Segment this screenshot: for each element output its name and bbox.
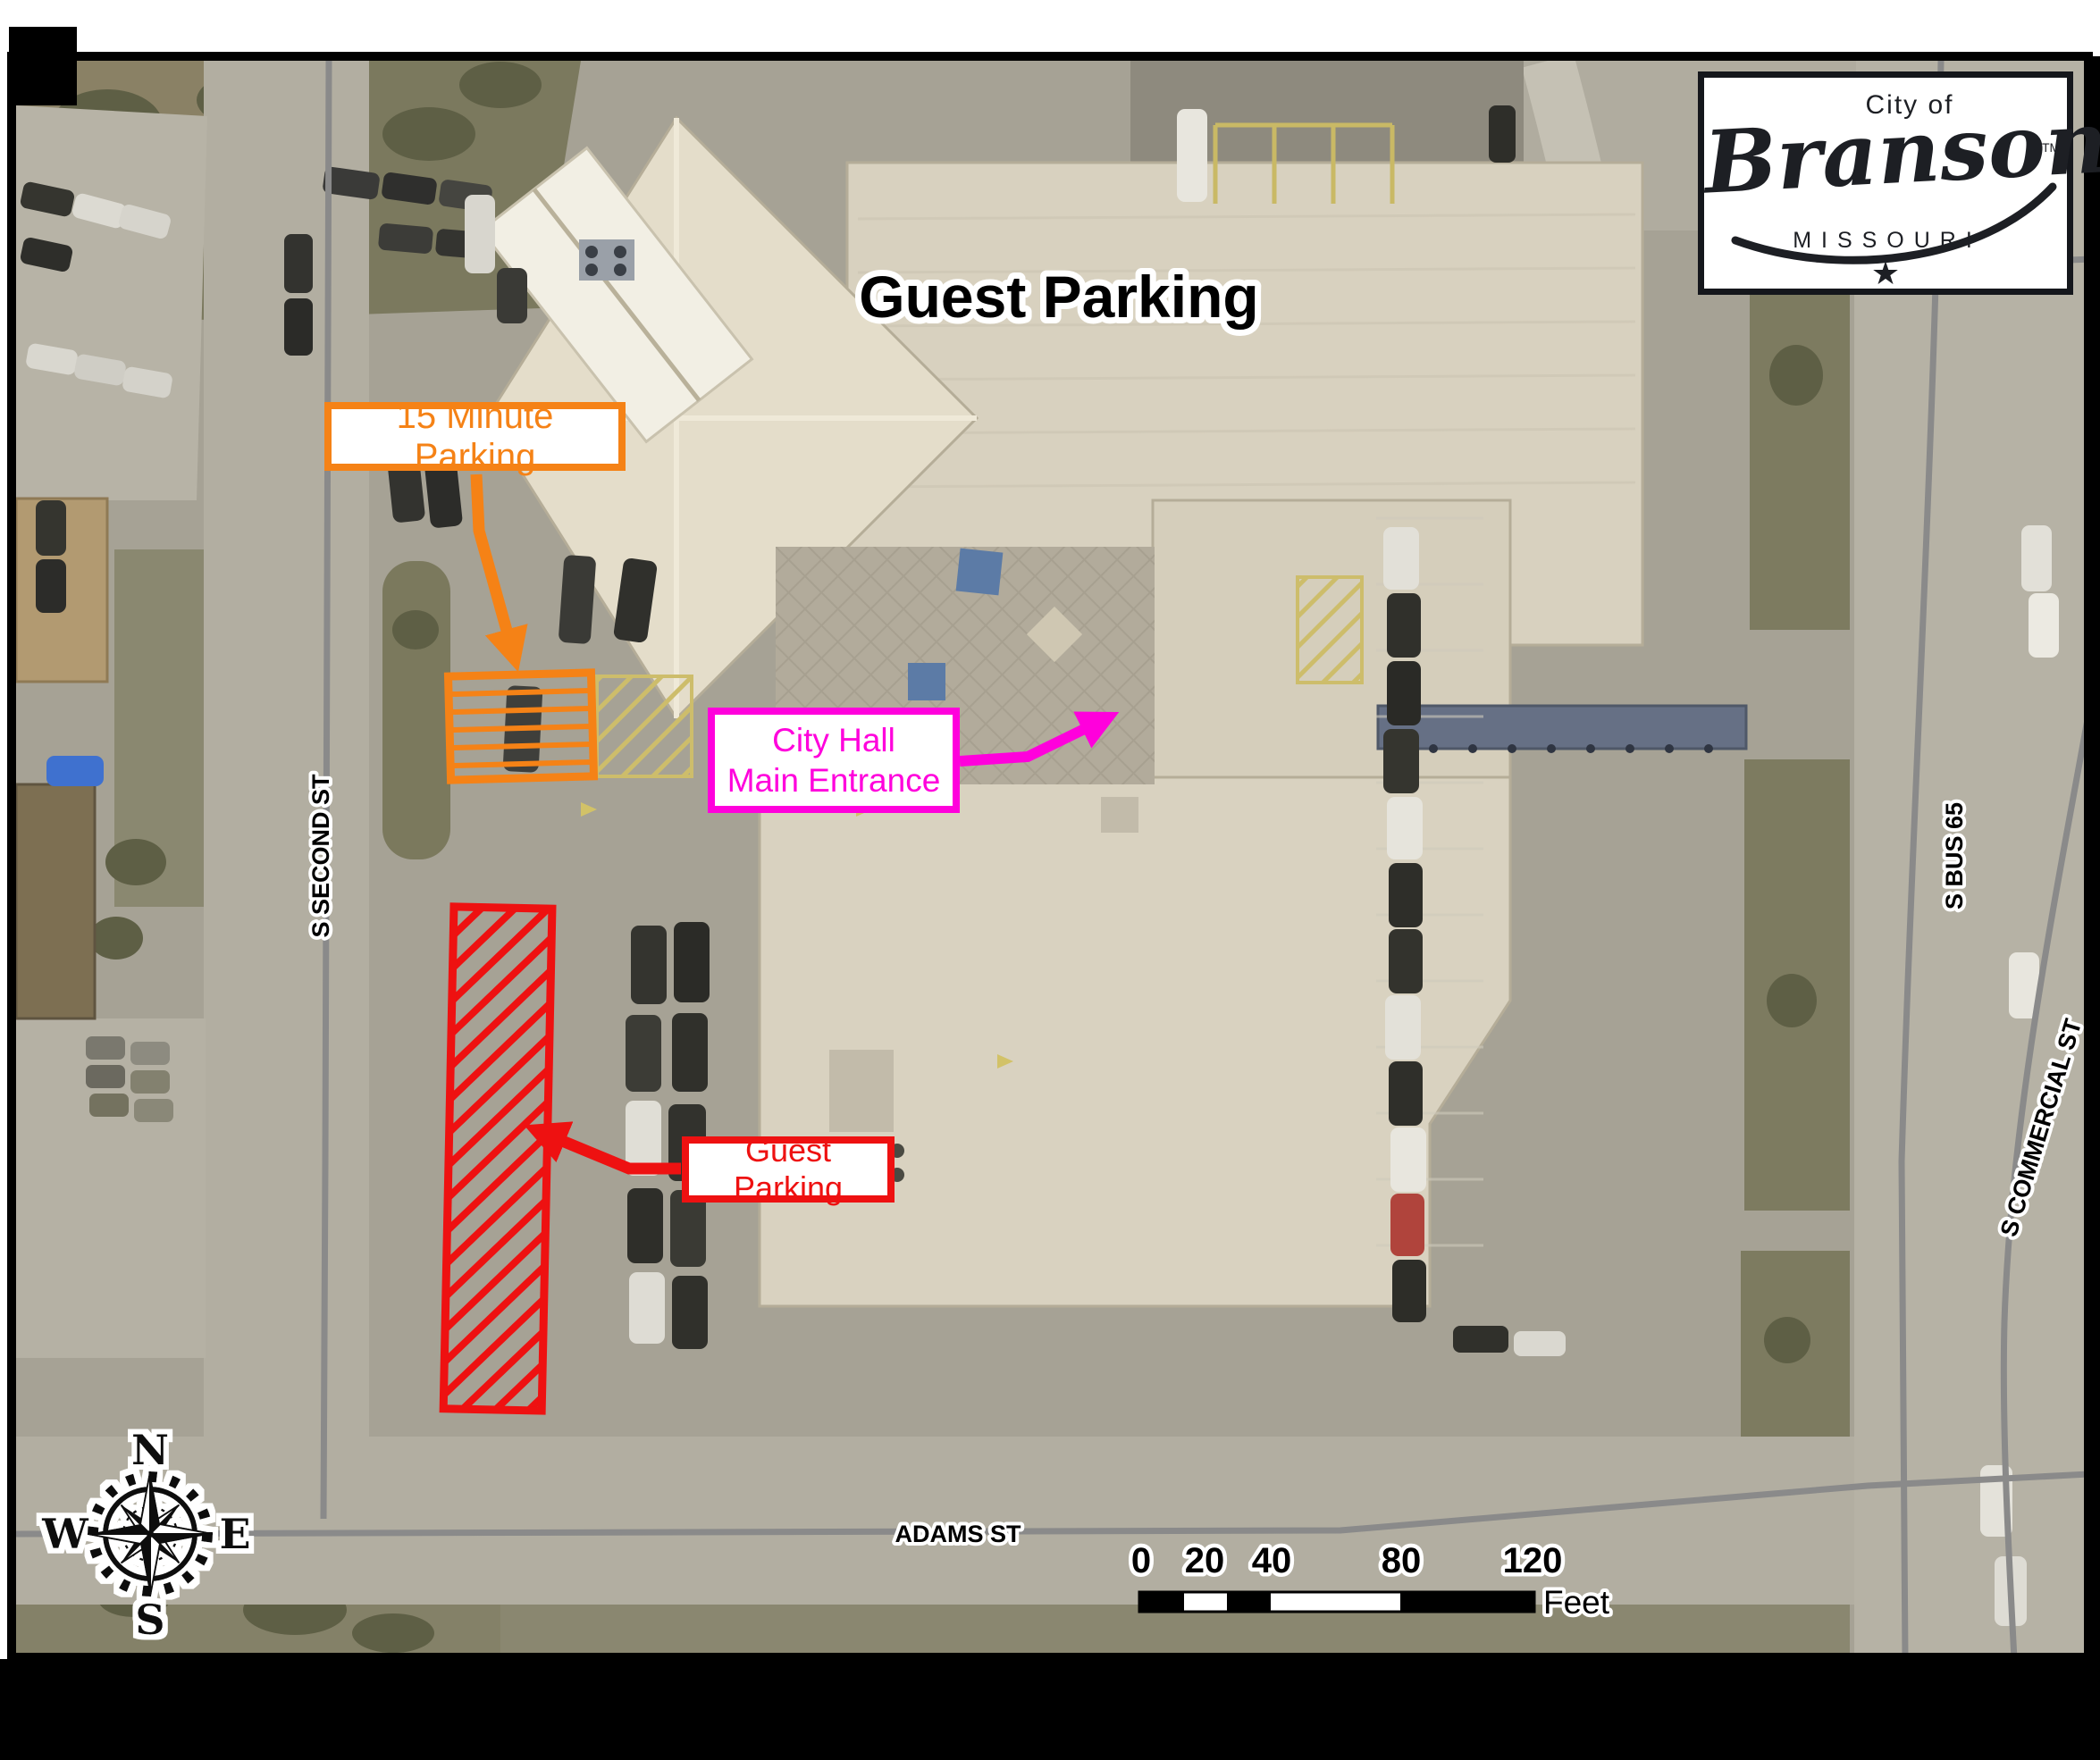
car (1392, 1260, 1426, 1322)
compass-n: N (131, 1426, 169, 1474)
car (2021, 525, 2052, 591)
car (1489, 105, 1516, 163)
bottom-black-band (0, 1659, 2100, 1760)
car (674, 922, 710, 1002)
guest-parking-zone (443, 907, 552, 1411)
corner-black-square (9, 27, 77, 105)
car (1387, 661, 1421, 725)
car (1453, 1326, 1508, 1353)
scale-tick-20: 20 (1185, 1541, 1225, 1580)
scale-unit-label: Feet (1543, 1584, 1610, 1621)
scale-tick-40: 40 (1252, 1541, 1292, 1580)
car (2029, 593, 2059, 658)
right-black-edge (2084, 56, 2100, 1659)
car (672, 1013, 708, 1092)
scale-tick-120: 120 (1503, 1541, 1563, 1580)
car (629, 1272, 665, 1344)
car (1389, 929, 1423, 993)
parking-map-page: Guest Parking S SECOND ST ADAMS ST S BUS… (0, 0, 2100, 1760)
scale-tick-80: 80 (1382, 1541, 1422, 1580)
car (1177, 109, 1207, 202)
car (497, 268, 527, 323)
logo-missouri: MISSOURI (1758, 228, 2017, 254)
car (672, 1276, 708, 1349)
car (284, 234, 313, 293)
car (89, 1094, 129, 1117)
car (1389, 863, 1423, 927)
car (1385, 995, 1421, 1060)
guest-parking-callout: Guest Parking (682, 1136, 895, 1203)
car (36, 500, 66, 556)
compass-w: W (41, 1510, 89, 1558)
logo-branson-wordmark: Branson (1701, 93, 2069, 213)
car (1387, 593, 1421, 658)
compass-e: E (219, 1510, 250, 1558)
fifteen-minute-parking-label: 15 Minute Parking (332, 397, 618, 477)
street-label-adams: ADAMS ST (895, 1521, 1022, 1547)
city-hall-entrance-callout: City Hall Main Entrance (708, 708, 960, 813)
car (465, 195, 495, 273)
car (36, 559, 66, 613)
car (378, 222, 433, 254)
compass-s: S (135, 1596, 164, 1644)
car (130, 1070, 170, 1094)
car (559, 555, 597, 644)
road-bus65 (1854, 61, 2087, 1655)
car (86, 1065, 125, 1088)
car (46, 756, 104, 786)
street-label-second: S SECOND ST (307, 774, 334, 938)
car (1514, 1331, 1566, 1356)
car (1383, 527, 1419, 590)
car (626, 1015, 661, 1092)
car (1390, 1194, 1424, 1256)
car (1383, 729, 1419, 793)
entrance-canopy (1378, 706, 1746, 749)
fifteen-minute-parking-callout: 15 Minute Parking (324, 402, 626, 471)
car (627, 1188, 663, 1263)
branson-logo-box: City of Branson TM MISSOURI ★ (1698, 71, 2073, 295)
page-title: Guest Parking (859, 264, 1258, 330)
car (86, 1036, 125, 1060)
logo-star-icon: ★ (1704, 255, 2067, 292)
car (284, 298, 313, 356)
scale-tick-0: 0 (1131, 1541, 1151, 1580)
car (130, 1042, 170, 1065)
car (631, 926, 667, 1004)
logo-trademark: TM (2042, 140, 2060, 155)
city-hall-label-line1: City Hall (772, 720, 895, 760)
street-label-bus65: S BUS 65 (1941, 802, 1968, 909)
guest-parking-label: Guest Parking (689, 1132, 887, 1207)
car (1387, 797, 1423, 859)
city-hall-label-line2: Main Entrance (727, 760, 941, 800)
car (1389, 1061, 1423, 1126)
car (134, 1099, 173, 1122)
car (1390, 1127, 1426, 1192)
